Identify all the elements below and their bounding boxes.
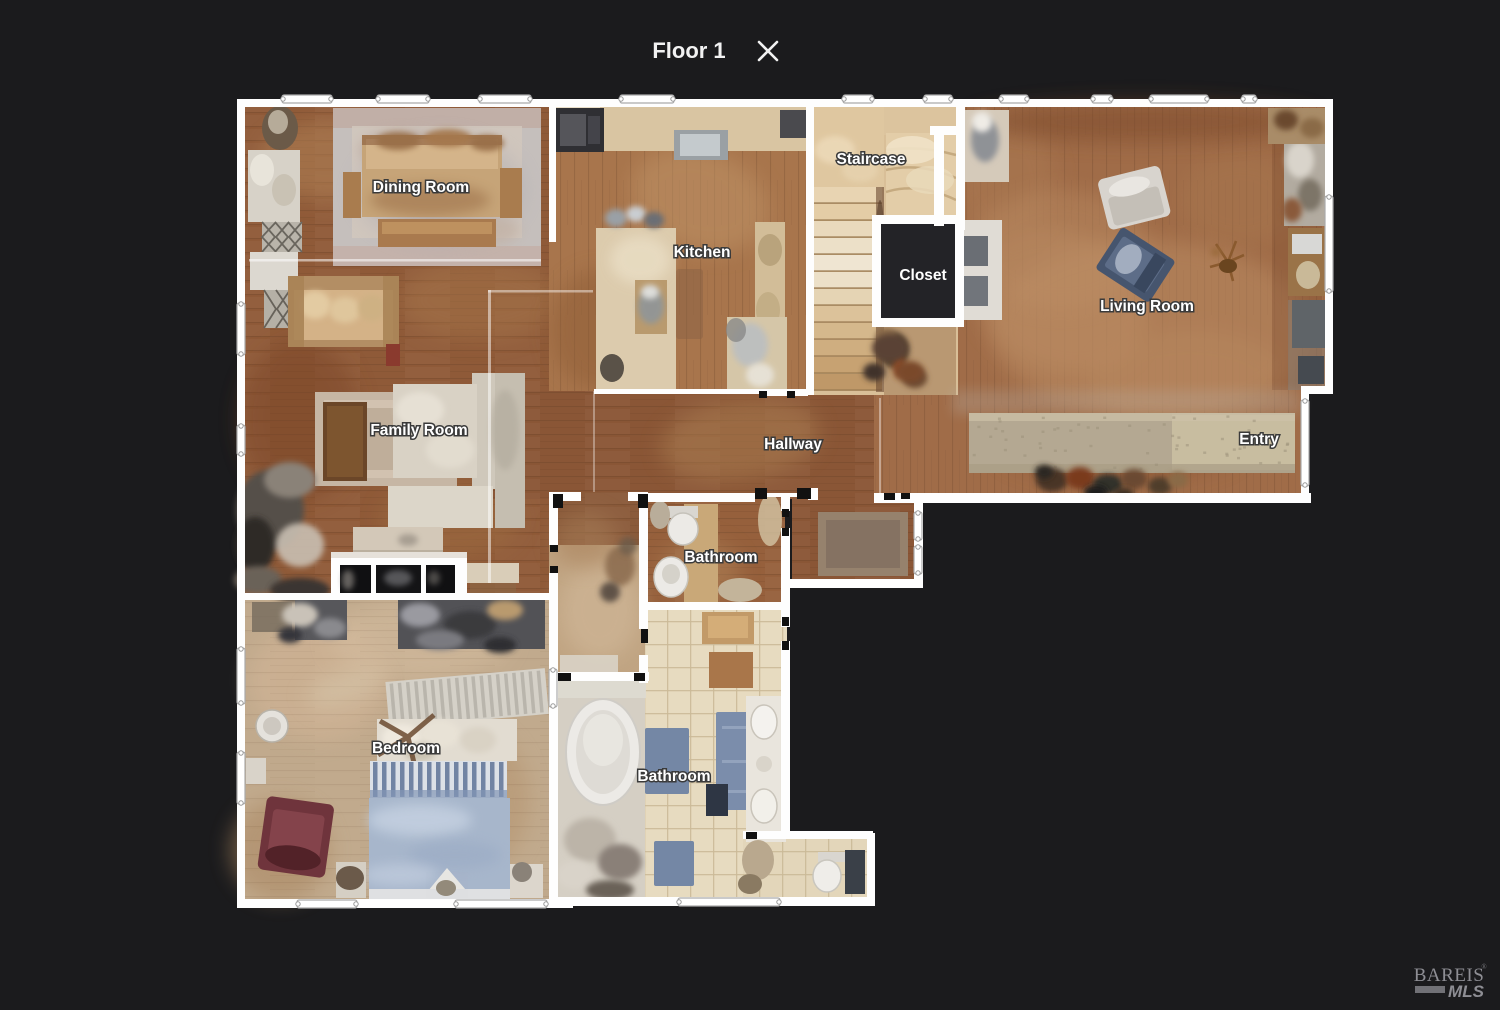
svg-text:Entry: Entry [1239, 431, 1279, 448]
svg-text:Bathroom: Bathroom [637, 768, 710, 785]
svg-text:®: ® [1481, 963, 1487, 971]
svg-text:Closet: Closet [899, 267, 946, 284]
svg-text:Dining Room: Dining Room [373, 179, 469, 196]
svg-text:Floor 1: Floor 1 [652, 38, 725, 63]
svg-text:Bedroom: Bedroom [372, 740, 440, 757]
svg-text:Living Room: Living Room [1100, 298, 1194, 315]
svg-text:Hallway: Hallway [764, 436, 822, 453]
svg-text:Kitchen: Kitchen [674, 244, 731, 261]
svg-text:MLS: MLS [1448, 982, 1485, 1001]
svg-text:Family Room: Family Room [370, 422, 467, 439]
svg-text:Staircase: Staircase [837, 151, 906, 168]
svg-text:Bathroom: Bathroom [684, 549, 757, 566]
